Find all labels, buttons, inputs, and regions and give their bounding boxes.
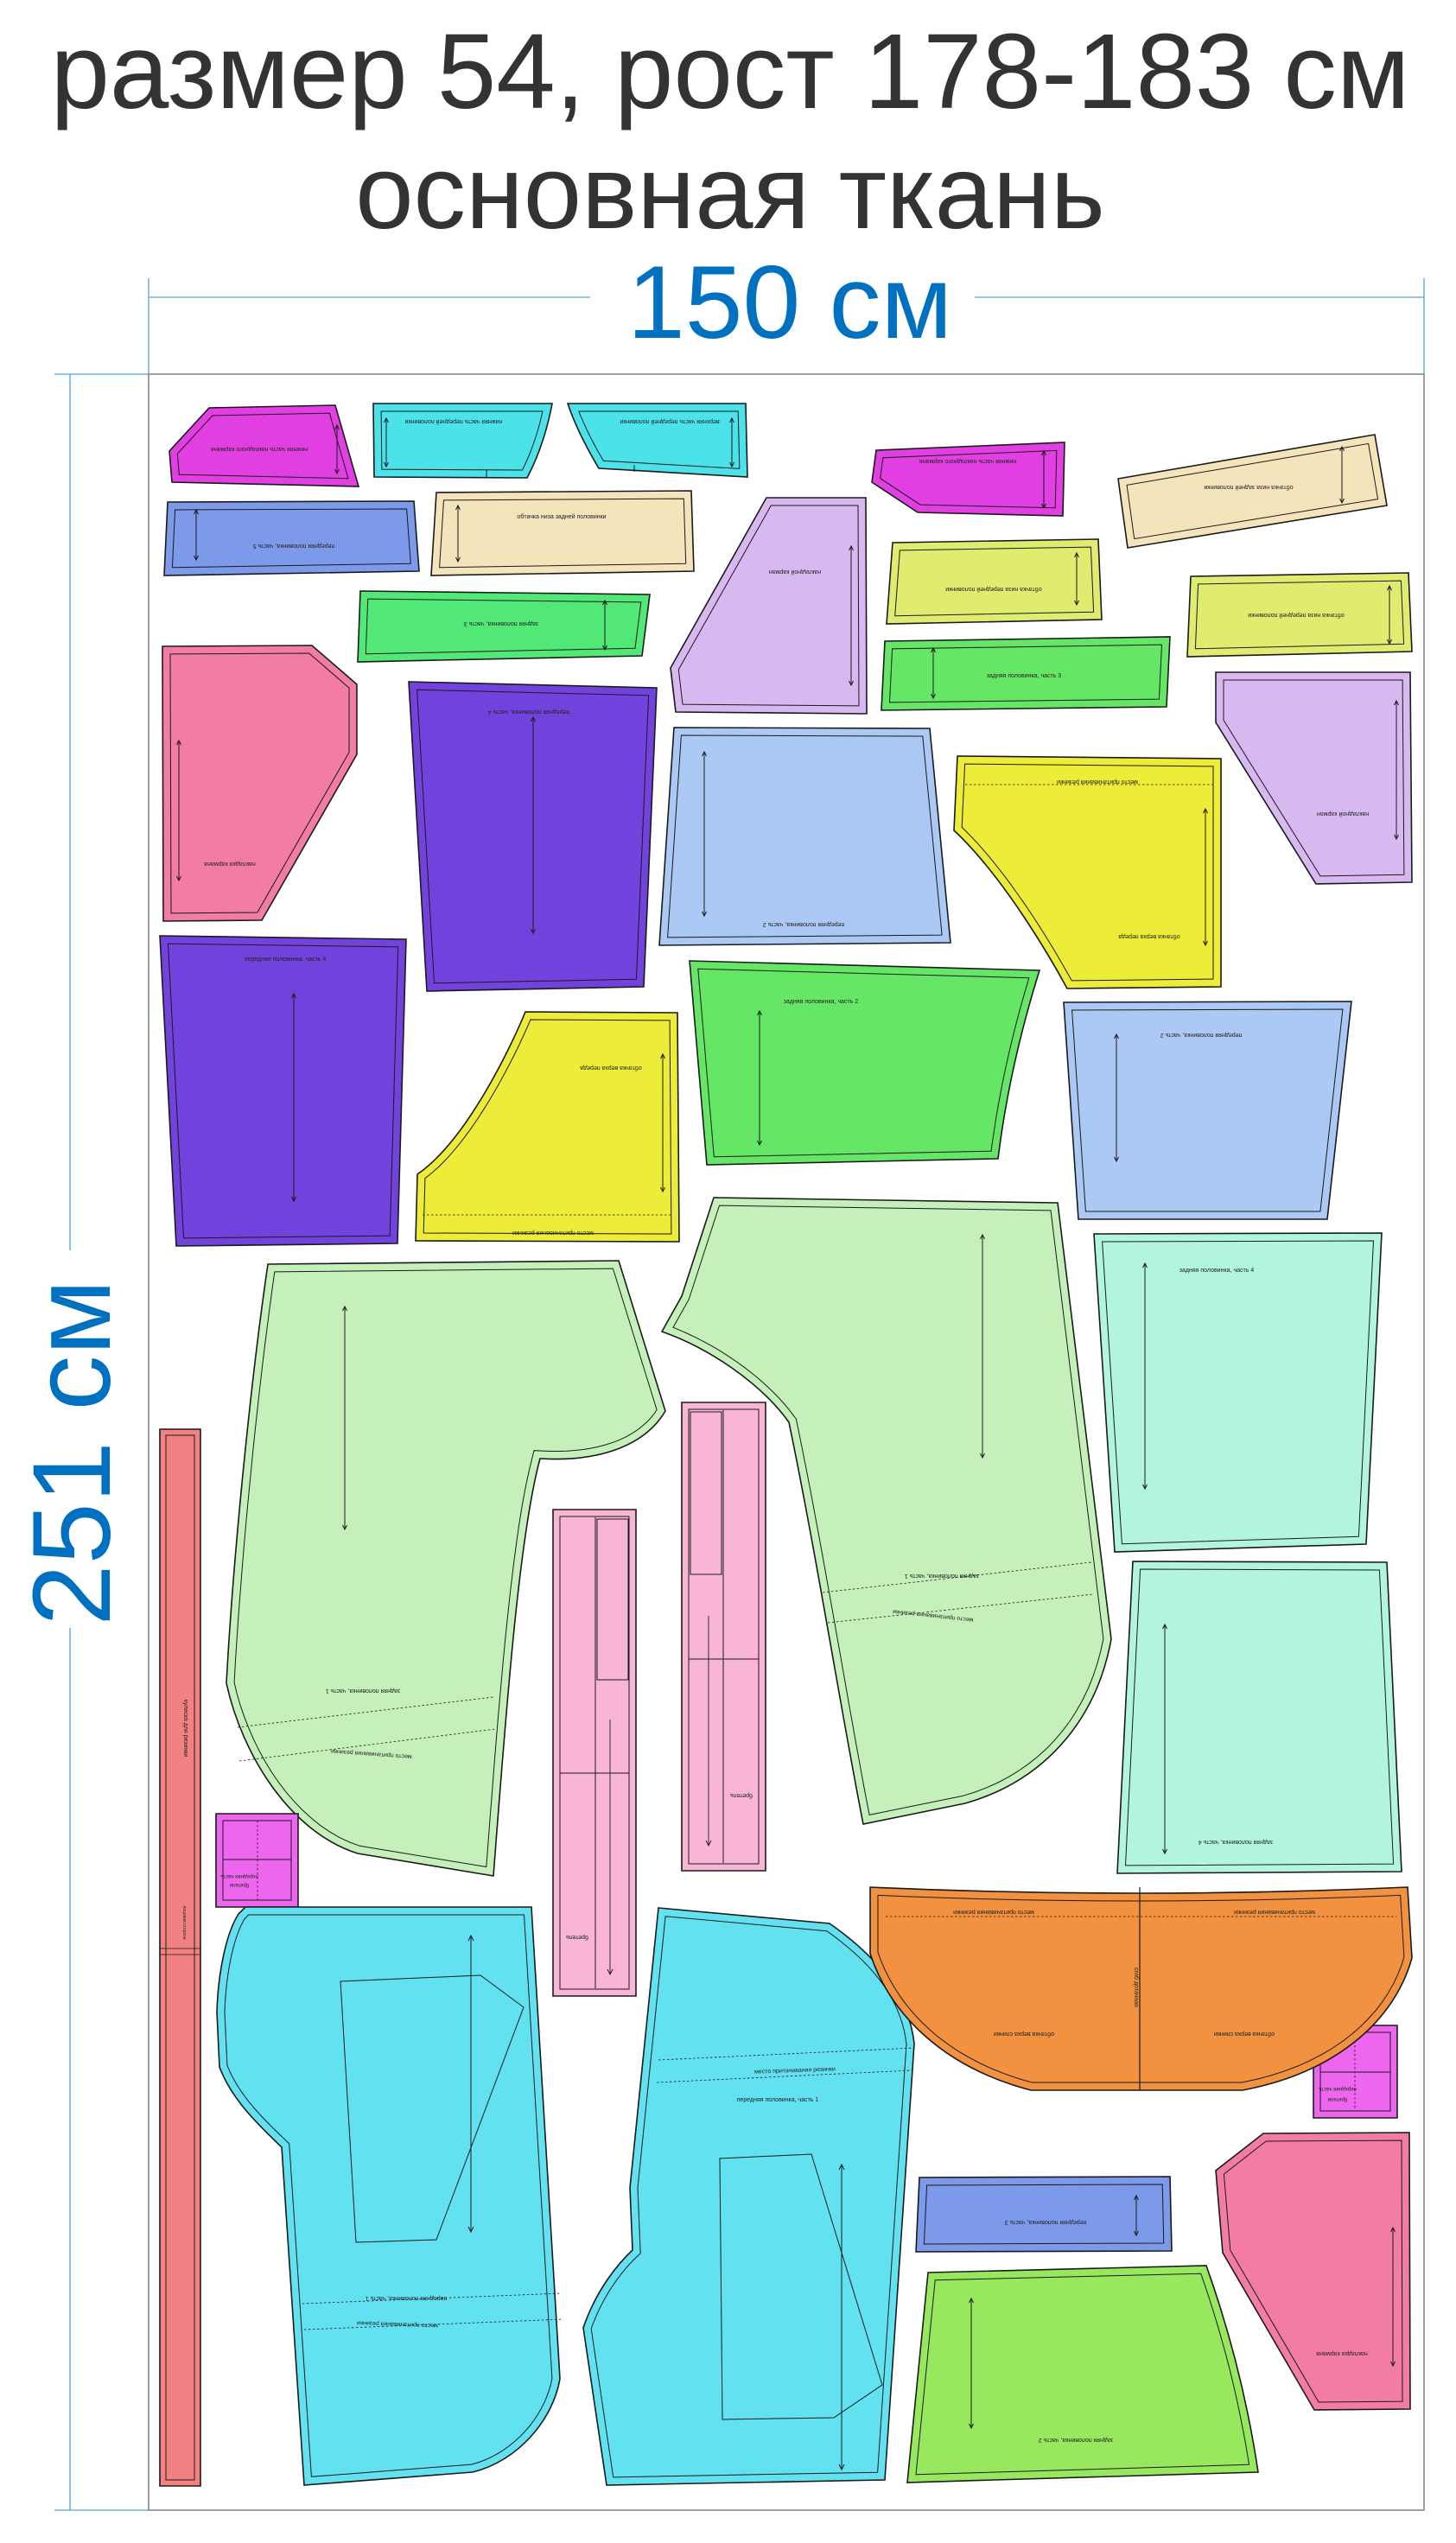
- svg-text:задняя половинка, часть 4: задняя половинка, часть 4: [1198, 1839, 1273, 1845]
- svg-text:обтачка верха переда: обтачка верха переда: [580, 1065, 641, 1071]
- svg-text:место притачивания резинки: место притачивания резинки: [1234, 1909, 1315, 1915]
- svg-text:основная ткань: основная ткань: [355, 133, 1105, 251]
- svg-text:место притачивания резинки: место притачивания резинки: [512, 1230, 594, 1236]
- svg-text:передняя половинка, часть 3: передняя половинка, часть 3: [1005, 2219, 1087, 2225]
- svg-text:передняя часть: передняя часть: [1319, 2086, 1356, 2091]
- svg-text:передняя половинка, часть 1: передняя половинка, часть 1: [737, 2097, 819, 2103]
- svg-text:накладной карман: накладной карман: [769, 569, 821, 575]
- svg-text:передняя половинка, часть 4: передняя половинка, часть 4: [488, 709, 570, 715]
- svg-text:накладной карман: накладной карман: [1317, 811, 1369, 817]
- svg-text:задняя половинка, часть 4: задняя половинка, часть 4: [1179, 1268, 1254, 1274]
- svg-text:бретель: бретель: [730, 1792, 753, 1799]
- svg-text:задняя половинка, часть 2: задняя половинка, часть 2: [1039, 2437, 1113, 2443]
- svg-text:обтачка верха переда: обтачка верха переда: [1118, 933, 1179, 940]
- svg-text:место притачивания резинки: место притачивания резинки: [1057, 779, 1138, 785]
- svg-text:обтачка низа задней половинки: обтачка низа задней половинки: [1204, 484, 1293, 491]
- svg-text:бретели: бретели: [1328, 2096, 1348, 2101]
- svg-text:задняя половинка, часть 3: задняя половинка, часть 3: [987, 673, 1061, 679]
- svg-text:место притачивания резинки: место притачивания резинки: [953, 1909, 1034, 1915]
- svg-text:кулиска для резинки: кулиска для резинки: [182, 1700, 188, 1758]
- svg-text:накладка кармана: накладка кармана: [1316, 2350, 1368, 2356]
- svg-text:обтачка низа передней половинк: обтачка низа передней половинки: [945, 586, 1041, 593]
- svg-text:сгиб дотачная: сгиб дотачная: [1133, 1968, 1140, 2007]
- svg-text:накладка кармана: накладка кармана: [204, 861, 256, 867]
- svg-text:бретель: бретель: [566, 1934, 588, 1941]
- svg-text:передняя половинка, часть 2: передняя половинка, часть 2: [763, 921, 845, 927]
- svg-text:передняя половинка, часть 5: передняя половинка, часть 5: [253, 543, 335, 549]
- svg-text:размер 54, рост 178-183 см: размер 54, рост 178-183 см: [51, 13, 1410, 131]
- svg-text:передняя часть: передняя часть: [220, 1873, 258, 1879]
- svg-text:нижняя часть передней половинк: нижняя часть передней половинки: [405, 418, 503, 425]
- svg-text:обтачка верха спинки: обтачка верха спинки: [994, 2031, 1054, 2038]
- svg-text:нижняя часть накладного карман: нижняя часть накладного кармана: [211, 446, 308, 452]
- svg-text:передняя половинка, часть 4: передняя половинка, часть 4: [245, 957, 327, 963]
- svg-text:передняя половинка, часть 1: передняя половинка, часть 1: [366, 2295, 448, 2301]
- svg-text:обтачка низа задней половинки: обтачка низа задней половинки: [517, 513, 606, 520]
- svg-text:передняя половинка, часть 2: передняя половинка, часть 2: [1160, 1032, 1243, 1038]
- svg-text:150 см: 150 см: [627, 245, 952, 360]
- svg-text:бретели: бретели: [230, 1882, 250, 1887]
- svg-text:обтачка верха спинки: обтачка верха спинки: [1214, 2031, 1275, 2038]
- svg-text:251 см: 251 см: [10, 1279, 134, 1625]
- svg-text:задняя половинка, часть 3: задняя половинка, часть 3: [464, 620, 538, 626]
- svg-text:задняя половинка, часть 1: задняя половинка, часть 1: [905, 1573, 979, 1579]
- svg-text:лицевая сторона: лицевая сторона: [181, 1905, 187, 1940]
- svg-text:обтачка низа передней половинк: обтачка низа передней половинки: [1248, 612, 1344, 619]
- svg-text:задняя половинка, часть 1: задняя половинка, часть 1: [326, 1688, 400, 1694]
- svg-text:верхняя часть передней половин: верхняя часть передней половинки: [620, 418, 719, 425]
- svg-text:нижняя часть накладного карман: нижняя часть накладного кармана: [919, 458, 1016, 464]
- svg-text:задняя половинка, часть 2: задняя половинка, часть 2: [784, 999, 858, 1005]
